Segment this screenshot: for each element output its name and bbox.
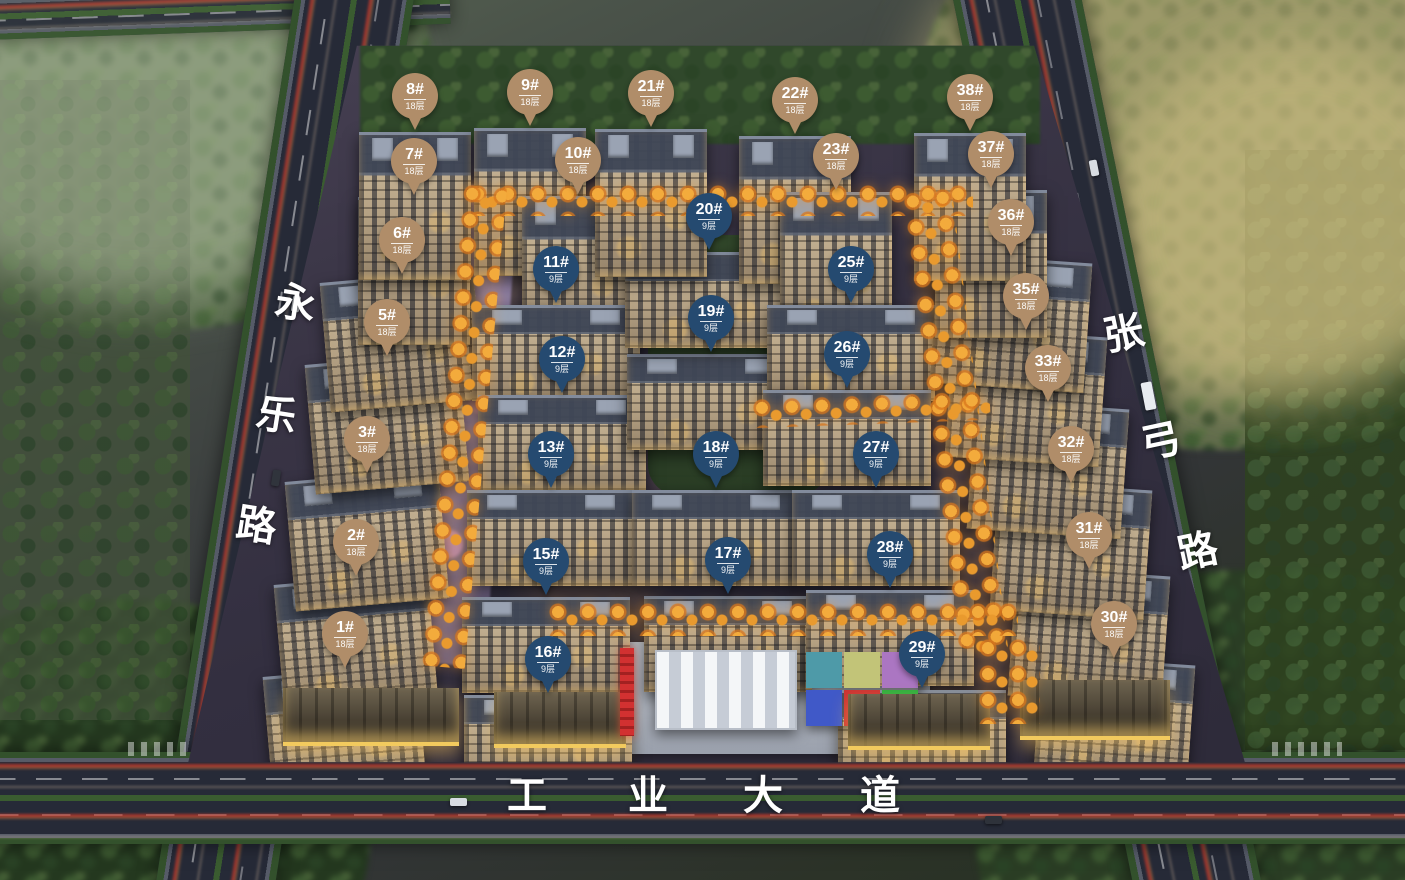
- pin-divider: [1000, 225, 1022, 226]
- pin-divider: [1037, 371, 1059, 372]
- pin-tail: [1017, 312, 1035, 330]
- pin-building-number: 27#: [863, 439, 890, 456]
- building-marker-33[interactable]: 33#18层: [1025, 345, 1071, 402]
- building-marker-16[interactable]: 16#9层: [525, 636, 571, 693]
- building-marker-10[interactable]: 10#18层: [555, 137, 601, 194]
- pin-building-number: 3#: [358, 424, 376, 441]
- pin-floor-count: 18层: [568, 165, 587, 175]
- pin-divider: [391, 243, 413, 244]
- pin-tail: [1062, 465, 1080, 483]
- pin-divider: [519, 95, 541, 96]
- pin-divider: [1015, 299, 1037, 300]
- building-marker-35[interactable]: 35#18层: [1003, 273, 1049, 330]
- pin-divider: [1103, 627, 1125, 628]
- building-marker-21[interactable]: 21#18层: [628, 70, 674, 127]
- pin-floor-count: 18层: [335, 639, 354, 649]
- building-marker-18[interactable]: 18#9层: [693, 431, 739, 488]
- pin-floor-count: 9层: [721, 565, 735, 575]
- pin-floor-count: 9层: [704, 323, 718, 333]
- pin-divider: [535, 564, 557, 565]
- pin-floor-count: 9层: [883, 559, 897, 569]
- pin-tail: [913, 670, 931, 688]
- pin-building-number: 15#: [533, 546, 560, 563]
- building-marker-20[interactable]: 20#9层: [686, 193, 732, 250]
- pin-tail: [521, 108, 539, 126]
- pin-building-number: 1#: [336, 619, 354, 636]
- building-marker-26[interactable]: 26#9层: [824, 331, 870, 388]
- pin-tail: [553, 375, 571, 393]
- pin-building-number: 16#: [535, 644, 562, 661]
- building-marker-1[interactable]: 1#18层: [322, 611, 368, 668]
- pin-floor-count: 9层: [544, 459, 558, 469]
- pin-divider: [537, 662, 559, 663]
- pin-floor-count: 18层: [377, 327, 396, 337]
- pin-divider: [551, 362, 573, 363]
- pin-floor-count: 18层: [1038, 373, 1057, 383]
- pin-divider: [345, 545, 367, 546]
- pin-tail: [393, 256, 411, 274]
- building-marker-2[interactable]: 2#18层: [333, 519, 379, 576]
- pin-divider: [640, 96, 662, 97]
- pin-building-number: 38#: [957, 82, 984, 99]
- building-marker-29[interactable]: 29#9层: [899, 631, 945, 688]
- pin-tail: [336, 650, 354, 668]
- pin-floor-count: 18层: [405, 101, 424, 111]
- pin-divider: [784, 103, 806, 104]
- pin-building-number: 17#: [715, 545, 742, 562]
- pin-tail: [1002, 238, 1020, 256]
- pin-floor-count: 9层: [541, 664, 555, 674]
- building-marker-5[interactable]: 5#18层: [364, 299, 410, 356]
- pin-divider: [334, 637, 356, 638]
- pin-divider: [840, 272, 862, 273]
- pin-floor-count: 9层: [539, 566, 553, 576]
- pin-floor-count: 9层: [844, 274, 858, 284]
- pin-floor-count: 18层: [392, 245, 411, 255]
- pin-tail: [842, 285, 860, 303]
- building-marker-32[interactable]: 32#18层: [1048, 426, 1094, 483]
- pin-building-number: 22#: [782, 85, 809, 102]
- pin-floor-count: 18层: [1016, 301, 1035, 311]
- pin-building-number: 11#: [543, 254, 569, 271]
- building-marker-38[interactable]: 38#18层: [947, 74, 993, 131]
- pin-divider: [700, 321, 722, 322]
- building-marker-19[interactable]: 19#9层: [688, 295, 734, 352]
- pin-building-number: 31#: [1076, 520, 1103, 537]
- pin-tail: [542, 470, 560, 488]
- pin-floor-count: 9层: [840, 359, 854, 369]
- pin-divider: [879, 557, 901, 558]
- building-marker-12[interactable]: 12#9层: [539, 336, 585, 393]
- pin-tail: [838, 370, 856, 388]
- pin-tail: [881, 570, 899, 588]
- pin-divider: [717, 563, 739, 564]
- pin-divider: [376, 325, 398, 326]
- pin-divider: [865, 457, 887, 458]
- pin-building-number: 37#: [978, 139, 1005, 156]
- pin-building-number: 30#: [1101, 609, 1128, 626]
- pin-tail: [700, 232, 718, 250]
- pin-building-number: 20#: [696, 201, 723, 218]
- pin-tail: [867, 470, 885, 488]
- pin-tail: [707, 470, 725, 488]
- pin-floor-count: 18层: [1104, 629, 1123, 639]
- pin-divider: [836, 357, 858, 358]
- pin-divider: [356, 442, 378, 443]
- building-marker-28[interactable]: 28#9层: [867, 531, 913, 588]
- pin-tail: [569, 176, 587, 194]
- pin-tail: [961, 113, 979, 131]
- pin-floor-count: 9层: [555, 364, 569, 374]
- building-marker-27[interactable]: 27#9层: [853, 431, 899, 488]
- pin-building-number: 32#: [1058, 434, 1085, 451]
- building-marker-3[interactable]: 3#18层: [344, 416, 390, 473]
- pin-building-number: 18#: [703, 439, 730, 456]
- building-marker-37[interactable]: 37#18层: [968, 131, 1014, 188]
- pin-divider: [545, 272, 567, 273]
- pin-tail: [642, 109, 660, 127]
- pin-building-number: 29#: [909, 639, 936, 656]
- pin-divider: [1060, 452, 1082, 453]
- pin-divider: [911, 657, 933, 658]
- pin-building-number: 13#: [538, 439, 565, 456]
- pin-building-number: 7#: [405, 146, 423, 163]
- pin-floor-count: 18层: [1079, 540, 1098, 550]
- pin-tail: [537, 577, 555, 595]
- pin-tail: [719, 576, 737, 594]
- pin-divider: [403, 164, 425, 165]
- pin-building-number: 36#: [998, 207, 1025, 224]
- pin-floor-count: 9层: [549, 274, 563, 284]
- pin-divider: [705, 457, 727, 458]
- pin-floor-count: 18层: [357, 444, 376, 454]
- pin-tail: [378, 338, 396, 356]
- car: [985, 816, 1002, 824]
- pin-tail: [405, 177, 423, 195]
- markers-layer: 1#18层2#18层3#18层5#18层6#18层7#18层8#18层9#18层…: [0, 0, 1405, 880]
- pin-floor-count: 18层: [785, 105, 804, 115]
- pin-building-number: 25#: [838, 254, 865, 271]
- pin-tail: [547, 285, 565, 303]
- pin-tail: [1080, 551, 1098, 569]
- pin-building-number: 5#: [378, 307, 396, 324]
- pin-floor-count: 18层: [404, 166, 423, 176]
- pin-floor-count: 18层: [1061, 454, 1080, 464]
- pin-divider: [698, 219, 720, 220]
- pin-divider: [825, 159, 847, 160]
- pin-floor-count: 18层: [826, 161, 845, 171]
- pin-tail: [347, 558, 365, 576]
- building-marker-6[interactable]: 6#18层: [379, 217, 425, 274]
- pin-building-number: 19#: [698, 303, 725, 320]
- pin-building-number: 2#: [347, 527, 365, 544]
- pin-floor-count: 18层: [520, 97, 539, 107]
- building-marker-22[interactable]: 22#18层: [772, 77, 818, 134]
- building-marker-17[interactable]: 17#9层: [705, 537, 751, 594]
- pin-building-number: 28#: [877, 539, 904, 556]
- building-marker-13[interactable]: 13#9层: [528, 431, 574, 488]
- pin-tail: [406, 112, 424, 130]
- pin-floor-count: 18层: [1001, 227, 1020, 237]
- pin-floor-count: 18层: [960, 102, 979, 112]
- building-marker-36[interactable]: 36#18层: [988, 199, 1034, 256]
- pin-tail: [827, 172, 845, 190]
- pin-building-number: 12#: [549, 344, 576, 361]
- pin-building-number: 26#: [834, 339, 861, 356]
- building-marker-23[interactable]: 23#18层: [813, 133, 859, 190]
- pin-floor-count: 18层: [641, 98, 660, 108]
- pin-divider: [980, 157, 1002, 158]
- pin-floor-count: 9层: [702, 221, 716, 231]
- pin-divider: [567, 163, 589, 164]
- pin-tail: [539, 675, 557, 693]
- pin-floor-count: 18层: [346, 547, 365, 557]
- pin-floor-count: 18层: [981, 159, 1000, 169]
- building-marker-7[interactable]: 7#18层: [391, 138, 437, 195]
- pin-divider: [404, 99, 426, 100]
- pin-divider: [1078, 538, 1100, 539]
- pin-tail: [786, 116, 804, 134]
- building-marker-31[interactable]: 31#18层: [1066, 512, 1112, 569]
- masterplan-scene: 永乐路张弓路工业大道 1#18层2#18层3#18层5#18层6#18层7#18…: [0, 0, 1405, 880]
- building-marker-8[interactable]: 8#18层: [392, 73, 438, 130]
- building-marker-11[interactable]: 11#9层: [533, 246, 579, 303]
- pin-building-number: 9#: [521, 77, 539, 94]
- pin-tail: [1105, 640, 1123, 658]
- building-marker-9[interactable]: 9#18层: [507, 69, 553, 126]
- pin-tail: [702, 334, 720, 352]
- pin-divider: [959, 100, 981, 101]
- pin-floor-count: 9层: [915, 659, 929, 669]
- pin-divider: [540, 457, 562, 458]
- pin-tail: [982, 170, 1000, 188]
- building-marker-15[interactable]: 15#9层: [523, 538, 569, 595]
- pin-building-number: 35#: [1013, 281, 1040, 298]
- pin-tail: [1039, 384, 1057, 402]
- pin-building-number: 23#: [823, 141, 850, 158]
- pin-floor-count: 9层: [709, 459, 723, 469]
- pin-building-number: 10#: [565, 145, 592, 162]
- pin-building-number: 8#: [406, 81, 424, 98]
- pin-building-number: 33#: [1035, 353, 1062, 370]
- pin-building-number: 21#: [638, 78, 665, 95]
- pin-building-number: 6#: [393, 225, 411, 242]
- car: [450, 798, 467, 806]
- building-marker-30[interactable]: 30#18层: [1091, 601, 1137, 658]
- pin-tail: [358, 455, 376, 473]
- pin-floor-count: 9层: [869, 459, 883, 469]
- building-marker-25[interactable]: 25#9层: [828, 246, 874, 303]
